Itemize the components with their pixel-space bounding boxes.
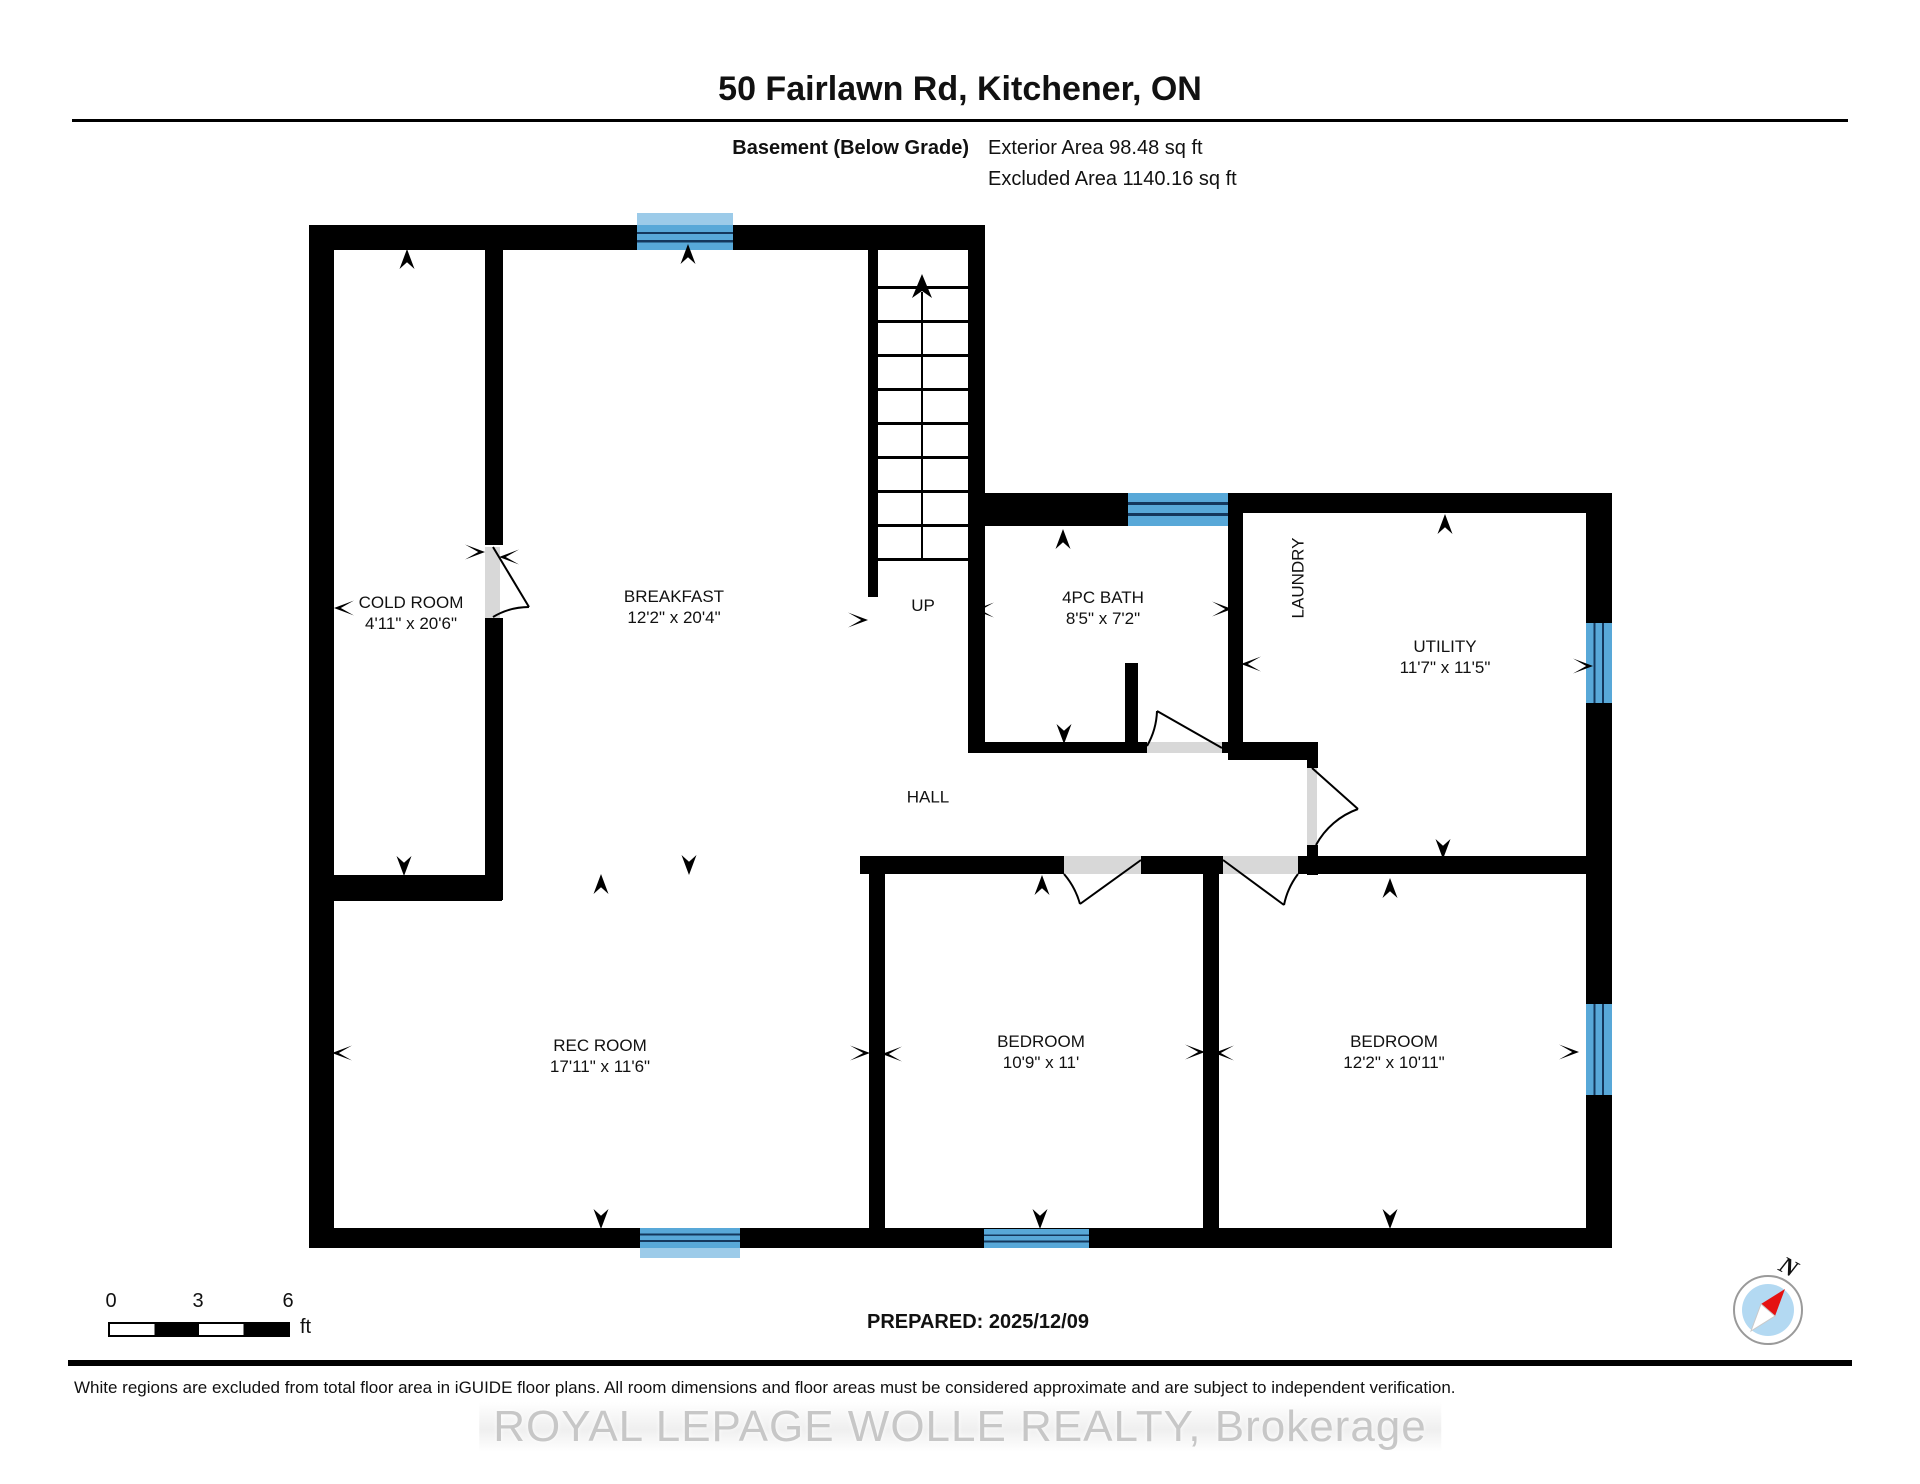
dim-arrow-down-icon xyxy=(1033,1209,1048,1229)
wall xyxy=(309,225,334,1247)
door-bedroom-left xyxy=(1064,856,1141,874)
stairs-up-label: UP xyxy=(911,596,935,616)
brokerage-watermark: ROYAL LEPAGE WOLLE REALTY, Brokerage xyxy=(479,1402,1441,1452)
wall xyxy=(1125,663,1138,742)
dim-arrow-up-icon xyxy=(1035,875,1050,895)
room-name: LAUNDRY xyxy=(1288,538,1309,619)
dim-arrow-left-icon xyxy=(1241,657,1261,672)
dim-arrow-right-icon xyxy=(1559,1045,1579,1060)
dim-arrow-right-icon xyxy=(1185,1045,1205,1060)
room-name: HALL xyxy=(907,787,950,808)
dim-arrow-left-icon xyxy=(499,550,519,565)
room-label-bedroom-right: BEDROOM 12'2" x 10'11" xyxy=(1343,1031,1444,1073)
room-label-hall: HALL xyxy=(907,787,950,808)
wall xyxy=(868,225,878,597)
door-arc-utility xyxy=(1312,768,1358,845)
dim-arrow-left-icon xyxy=(332,1046,352,1061)
room-name: COLD ROOM xyxy=(359,592,464,613)
staircase xyxy=(878,255,968,591)
scale-end: 6 xyxy=(282,1290,293,1313)
dim-arrow-down-icon xyxy=(594,1209,609,1229)
window xyxy=(984,1229,1089,1248)
wall xyxy=(485,618,503,900)
dim-arrow-up-icon xyxy=(1056,529,1071,549)
wall xyxy=(860,856,1064,874)
wall xyxy=(309,875,502,901)
scale-unit: ft xyxy=(300,1316,311,1339)
wall xyxy=(1307,760,1318,768)
room-name: 4PC BATH xyxy=(1062,587,1144,608)
exterior-area: Exterior Area 98.48 sq ft xyxy=(988,137,1203,160)
window xyxy=(1128,493,1228,526)
excluded-area: Excluded Area 1140.16 sq ft xyxy=(988,168,1237,191)
room-dims: 8'5" x 7'2" xyxy=(1062,608,1144,629)
dim-arrow-down-icon xyxy=(1057,724,1072,744)
room-dims: 4'11" x 20'6" xyxy=(359,613,464,634)
room-dims: 17'11" x 11'6" xyxy=(550,1056,650,1077)
room-name: BEDROOM xyxy=(997,1031,1085,1052)
room-label-bath: 4PC BATH 8'5" x 7'2" xyxy=(1062,587,1144,629)
room-label-cold-room: COLD ROOM 4'11" x 20'6" xyxy=(359,592,464,634)
room-label-laundry: LAUNDRY xyxy=(1288,538,1309,619)
room-dims: 11'7" x 11'5" xyxy=(1400,657,1491,678)
wall xyxy=(1203,874,1219,1228)
wall xyxy=(309,1228,1612,1248)
room-dims: 12'2" x 20'4" xyxy=(624,607,724,628)
dim-arrow-up-icon xyxy=(594,874,609,894)
door-cold-room xyxy=(485,547,500,618)
wall xyxy=(1222,742,1243,753)
dim-arrow-down-icon xyxy=(682,855,697,875)
window xyxy=(637,225,733,250)
door-bedroom-right xyxy=(1223,856,1298,874)
header-divider xyxy=(72,119,1848,122)
disclaimer-text: White regions are excluded from total fl… xyxy=(74,1378,1456,1398)
wall xyxy=(1228,493,1243,753)
dim-arrow-down-icon xyxy=(1383,1209,1398,1229)
dim-arrow-down-icon xyxy=(397,856,412,876)
dim-arrow-right-icon xyxy=(848,613,868,628)
wall xyxy=(485,225,503,545)
wall xyxy=(1298,856,1612,874)
window-sill xyxy=(637,213,733,225)
floor-label: Basement (Below Grade) xyxy=(732,137,969,160)
wall xyxy=(968,225,985,753)
wall xyxy=(869,856,885,1228)
room-label-bedroom-left: BEDROOM 10'9" x 11' xyxy=(997,1031,1085,1073)
room-name: UTILITY xyxy=(1400,636,1491,657)
dim-arrow-right-icon xyxy=(850,1046,870,1061)
dim-arrow-left-icon xyxy=(334,601,354,616)
window xyxy=(640,1228,740,1248)
room-dims: 10'9" x 11' xyxy=(997,1052,1085,1073)
door-utility xyxy=(1307,768,1317,845)
room-label-utility: UTILITY 11'7" x 11'5" xyxy=(1400,636,1491,678)
dim-arrow-left-icon xyxy=(882,1047,902,1062)
dim-arrow-up-icon xyxy=(1438,514,1453,534)
window-sill xyxy=(640,1248,740,1258)
door-swing-overlay xyxy=(0,0,1920,1484)
room-dims: 12'2" x 10'11" xyxy=(1343,1052,1444,1073)
window xyxy=(1586,623,1612,703)
room-name: BREAKFAST xyxy=(624,586,724,607)
door-bath xyxy=(1147,742,1222,753)
dim-arrow-up-icon xyxy=(1383,878,1398,898)
scale-mid: 3 xyxy=(192,1290,203,1313)
room-name: REC ROOM xyxy=(550,1035,650,1056)
room-name: BEDROOM xyxy=(1343,1031,1444,1052)
dim-arrow-up-icon xyxy=(400,249,415,269)
wall xyxy=(1243,493,1612,513)
dim-arrow-right-icon xyxy=(465,545,485,560)
footer-divider xyxy=(68,1360,1852,1366)
scale-bar xyxy=(108,1322,290,1337)
room-label-rec-room: REC ROOM 17'11" x 11'6" xyxy=(550,1035,650,1077)
page-title: 50 Fairlawn Rd, Kitchener, ON xyxy=(718,70,1202,109)
prepared-date: PREPARED: 2025/12/09 xyxy=(867,1311,1089,1334)
wall xyxy=(968,742,1147,753)
wall xyxy=(1141,856,1223,874)
room-label-breakfast: BREAKFAST 12'2" x 20'4" xyxy=(624,586,724,628)
window xyxy=(1586,1004,1612,1095)
scale-start: 0 xyxy=(105,1290,116,1313)
